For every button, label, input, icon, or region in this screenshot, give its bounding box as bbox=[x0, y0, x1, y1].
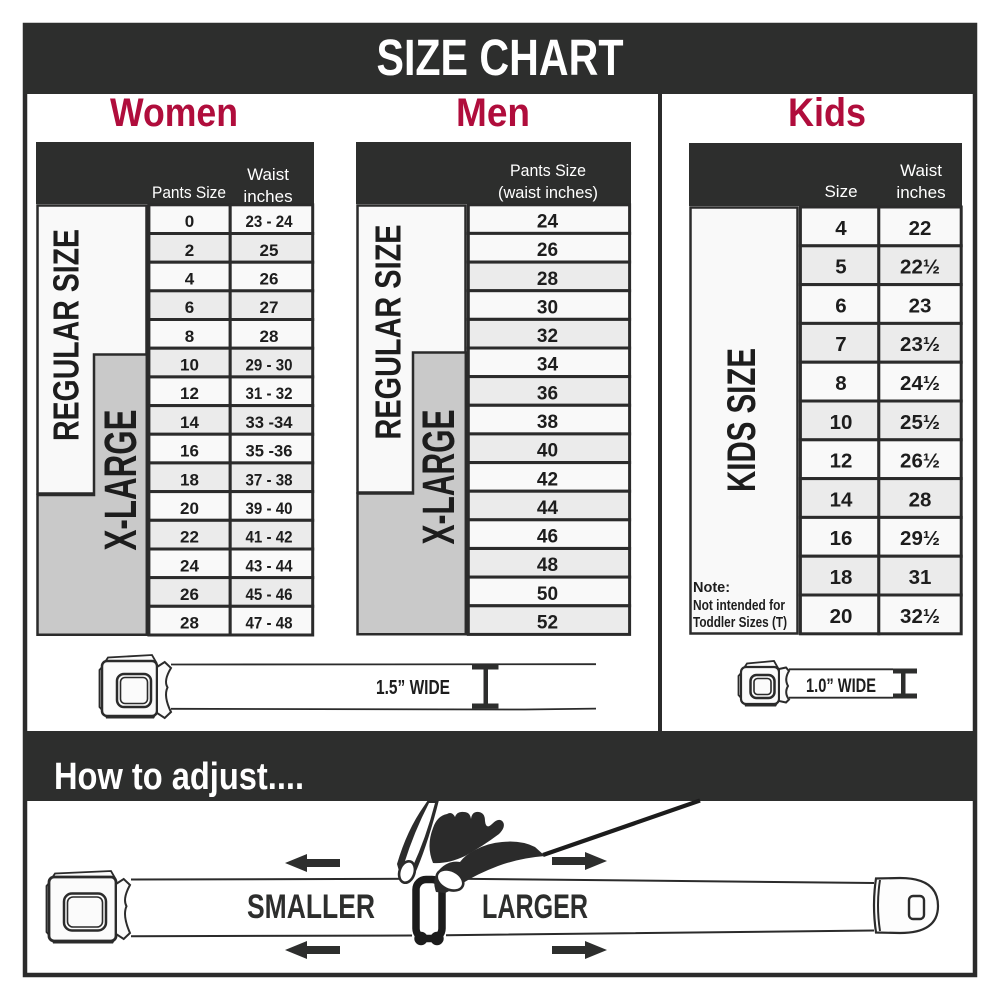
svg-text:32½: 32½ bbox=[900, 605, 940, 628]
svg-text:23½: 23½ bbox=[900, 333, 940, 356]
svg-text:Pants Size: Pants Size bbox=[510, 161, 586, 180]
svg-text:20: 20 bbox=[180, 499, 199, 518]
svg-text:1.0” WIDE: 1.0” WIDE bbox=[806, 676, 876, 697]
svg-text:36: 36 bbox=[537, 383, 558, 404]
svg-text:Women: Women bbox=[110, 91, 238, 135]
svg-text:41 - 42: 41 - 42 bbox=[246, 528, 293, 547]
svg-text:40: 40 bbox=[537, 441, 558, 462]
svg-text:REGULAR SIZE: REGULAR SIZE bbox=[46, 229, 87, 441]
svg-text:(waist inches): (waist inches) bbox=[498, 183, 598, 202]
svg-text:KIDS SIZE: KIDS SIZE bbox=[720, 348, 764, 492]
svg-text:12: 12 bbox=[180, 384, 199, 403]
svg-text:2: 2 bbox=[185, 241, 194, 260]
svg-text:34: 34 bbox=[537, 355, 559, 376]
svg-text:REGULAR SIZE: REGULAR SIZE bbox=[368, 225, 409, 440]
svg-text:Toddler Sizes (T): Toddler Sizes (T) bbox=[693, 615, 787, 631]
svg-text:12: 12 bbox=[830, 450, 853, 473]
svg-text:inches: inches bbox=[896, 183, 945, 202]
svg-text:39 - 40: 39 - 40 bbox=[246, 499, 293, 518]
svg-text:23: 23 bbox=[909, 294, 932, 317]
svg-text:28: 28 bbox=[909, 488, 932, 511]
svg-text:X-LARGE: X-LARGE bbox=[95, 410, 146, 551]
svg-text:29½: 29½ bbox=[900, 527, 940, 550]
svg-text:Size: Size bbox=[824, 182, 857, 201]
svg-text:42: 42 bbox=[537, 469, 558, 490]
svg-text:50: 50 bbox=[537, 584, 558, 605]
svg-text:46: 46 bbox=[537, 527, 558, 548]
svg-text:Waist: Waist bbox=[247, 165, 289, 184]
svg-text:25: 25 bbox=[260, 241, 279, 260]
svg-text:47 - 48: 47 - 48 bbox=[246, 614, 293, 633]
svg-text:35 -36: 35 -36 bbox=[246, 442, 293, 461]
svg-text:48: 48 bbox=[537, 555, 558, 576]
svg-text:16: 16 bbox=[830, 527, 853, 550]
svg-text:14: 14 bbox=[180, 413, 199, 432]
svg-text:4: 4 bbox=[185, 270, 195, 289]
svg-text:31: 31 bbox=[909, 566, 932, 589]
svg-text:26: 26 bbox=[537, 240, 558, 261]
svg-text:18: 18 bbox=[830, 566, 853, 589]
svg-text:23 - 24: 23 - 24 bbox=[246, 212, 293, 231]
svg-text:7: 7 bbox=[835, 333, 846, 356]
svg-text:inches: inches bbox=[243, 187, 292, 206]
svg-text:45 - 46: 45 - 46 bbox=[246, 585, 293, 604]
svg-text:28: 28 bbox=[260, 327, 279, 346]
svg-text:Kids: Kids bbox=[788, 91, 866, 135]
svg-text:44: 44 bbox=[537, 498, 559, 519]
svg-text:16: 16 bbox=[180, 442, 199, 461]
svg-text:6: 6 bbox=[835, 294, 846, 317]
svg-text:26½: 26½ bbox=[900, 450, 940, 473]
svg-text:25½: 25½ bbox=[900, 411, 940, 434]
svg-text:Men: Men bbox=[456, 91, 530, 135]
svg-text:22½: 22½ bbox=[900, 256, 940, 279]
svg-text:14: 14 bbox=[830, 488, 853, 511]
svg-text:30: 30 bbox=[537, 297, 558, 318]
svg-text:43 - 44: 43 - 44 bbox=[246, 556, 293, 575]
svg-text:26: 26 bbox=[260, 270, 279, 289]
svg-text:22: 22 bbox=[909, 217, 932, 240]
svg-text:27: 27 bbox=[260, 298, 279, 317]
svg-text:29 - 30: 29 - 30 bbox=[246, 356, 293, 375]
svg-text:SIZE CHART: SIZE CHART bbox=[377, 29, 624, 86]
svg-text:6: 6 bbox=[185, 298, 194, 317]
svg-text:31 - 32: 31 - 32 bbox=[246, 384, 293, 403]
svg-text:38: 38 bbox=[537, 412, 558, 433]
svg-text:X-LARGE: X-LARGE bbox=[413, 410, 464, 545]
svg-text:28: 28 bbox=[537, 269, 558, 290]
svg-text:8: 8 bbox=[835, 372, 846, 395]
svg-text:Waist: Waist bbox=[900, 161, 942, 180]
svg-text:18: 18 bbox=[180, 470, 199, 489]
svg-text:How to adjust....: How to adjust.... bbox=[54, 756, 304, 798]
svg-text:22: 22 bbox=[180, 528, 199, 547]
svg-text:Pants Size: Pants Size bbox=[152, 183, 226, 202]
svg-text:4: 4 bbox=[835, 217, 847, 240]
svg-text:10: 10 bbox=[830, 411, 853, 434]
svg-text:33 -34: 33 -34 bbox=[246, 413, 294, 432]
svg-text:1.5” WIDE: 1.5” WIDE bbox=[376, 677, 450, 699]
svg-text:24: 24 bbox=[180, 556, 199, 575]
svg-text:8: 8 bbox=[185, 327, 194, 346]
svg-text:24½: 24½ bbox=[900, 372, 940, 395]
svg-text:5: 5 bbox=[835, 256, 846, 279]
svg-text:Not intended for: Not intended for bbox=[693, 598, 785, 614]
svg-text:32: 32 bbox=[537, 326, 558, 347]
svg-text:26: 26 bbox=[180, 585, 199, 604]
svg-text:SMALLER: SMALLER bbox=[247, 888, 375, 926]
svg-text:Note:: Note: bbox=[693, 580, 730, 596]
svg-text:52: 52 bbox=[537, 613, 558, 634]
svg-text:20: 20 bbox=[830, 605, 853, 628]
svg-text:0: 0 bbox=[185, 212, 194, 231]
svg-text:24: 24 bbox=[537, 212, 559, 233]
svg-text:37 - 38: 37 - 38 bbox=[246, 470, 293, 489]
svg-text:LARGER: LARGER bbox=[482, 888, 588, 926]
svg-text:10: 10 bbox=[180, 356, 199, 375]
svg-text:28: 28 bbox=[180, 614, 199, 633]
